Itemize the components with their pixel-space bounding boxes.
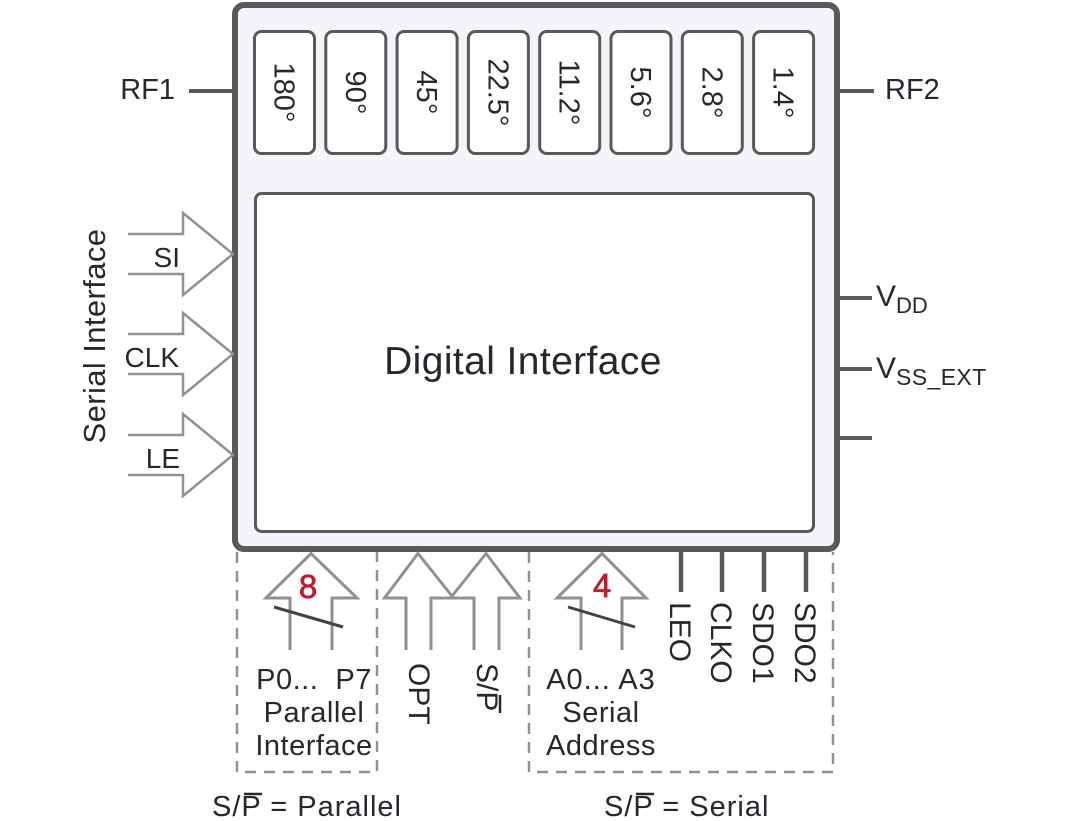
svg-text:Serial: Serial	[562, 697, 639, 729]
svg-text:45°: 45°	[410, 71, 442, 115]
svg-text:S/P = Parallel: S/P = Parallel	[212, 791, 402, 821]
svg-text:Parallel: Parallel	[264, 697, 365, 729]
svg-text:Address: Address	[546, 730, 656, 762]
svg-text:Serial Interface: Serial Interface	[77, 229, 112, 444]
svg-text:Digital Interface: Digital Interface	[384, 340, 662, 383]
svg-text:RF2: RF2	[885, 74, 940, 106]
svg-text:SDO2: SDO2	[788, 602, 821, 684]
svg-text:11.2°: 11.2°	[553, 60, 585, 126]
svg-text:Interface: Interface	[255, 730, 372, 762]
svg-text:90°: 90°	[339, 71, 371, 115]
svg-text:4: 4	[593, 567, 611, 604]
svg-text:8: 8	[299, 568, 317, 605]
svg-text:VDD: VDD	[876, 280, 928, 318]
svg-text:RF1: RF1	[120, 74, 175, 106]
svg-text:P0... P7: P0... P7	[256, 664, 372, 696]
svg-text:5.6°: 5.6°	[624, 67, 656, 119]
svg-text:2.8°: 2.8°	[695, 67, 727, 119]
svg-text:S/P = Serial: S/P = Serial	[604, 791, 769, 821]
svg-text:OPT: OPT	[402, 663, 435, 725]
svg-text:SDO1: SDO1	[746, 602, 779, 684]
svg-text:180°: 180°	[268, 63, 300, 123]
svg-text:SI: SI	[154, 242, 180, 273]
svg-text:A0... A3: A0... A3	[546, 664, 656, 696]
svg-text:CLK: CLK	[125, 342, 180, 373]
svg-text:CLKO: CLKO	[704, 602, 737, 684]
svg-text:LEO: LEO	[663, 602, 696, 662]
svg-text:1.4°: 1.4°	[767, 67, 799, 119]
svg-text:VSS_EXT: VSS_EXT	[876, 352, 987, 390]
svg-text:S/P: S/P	[470, 663, 503, 711]
svg-text:LE: LE	[146, 443, 180, 474]
svg-text:22.5°: 22.5°	[481, 58, 513, 126]
